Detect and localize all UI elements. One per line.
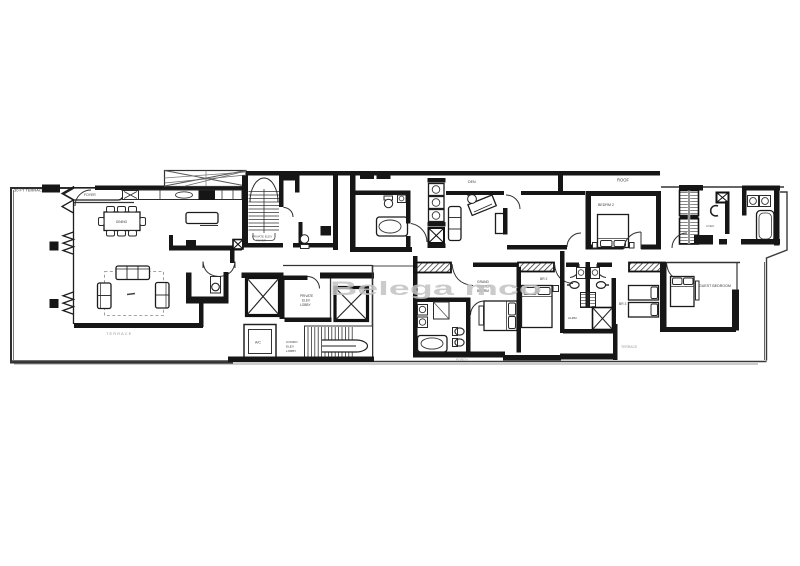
- svg-text:PRIVATE: PRIVATE: [300, 294, 313, 298]
- svg-text:ALRM: ALRM: [568, 316, 577, 320]
- svg-text:DINING: DINING: [116, 220, 128, 224]
- svg-text:LOBBY: LOBBY: [286, 349, 296, 353]
- svg-text:CONDO: CONDO: [286, 340, 298, 344]
- svg-text:T E R R A C E: T E R R A C E: [106, 331, 132, 336]
- svg-text:BEDRM 2: BEDRM 2: [598, 203, 614, 207]
- svg-text:ELEV: ELEV: [302, 299, 311, 303]
- svg-text:30 FT TERRACE: 30 FT TERRACE: [14, 188, 45, 193]
- svg-text:GUEST BEDROOM: GUEST BEDROOM: [699, 284, 731, 288]
- svg-text:LOBBY: LOBBY: [300, 303, 312, 307]
- svg-text:BR 3: BR 3: [619, 302, 626, 306]
- svg-text:LINEN: LINEN: [706, 224, 714, 228]
- svg-text:TERRACE: TERRACE: [621, 345, 638, 349]
- svg-text:FOYER: FOYER: [84, 193, 96, 197]
- svg-text:FOYER: FOYER: [256, 239, 266, 243]
- svg-text:PORCH: PORCH: [456, 358, 468, 362]
- svg-text:A/C: A/C: [255, 341, 261, 345]
- svg-text:DEN: DEN: [468, 180, 476, 184]
- svg-text:ELEV: ELEV: [286, 345, 295, 349]
- svg-text:ROOF: ROOF: [617, 178, 630, 183]
- svg-text:Belega mco: Belega mco: [330, 279, 542, 300]
